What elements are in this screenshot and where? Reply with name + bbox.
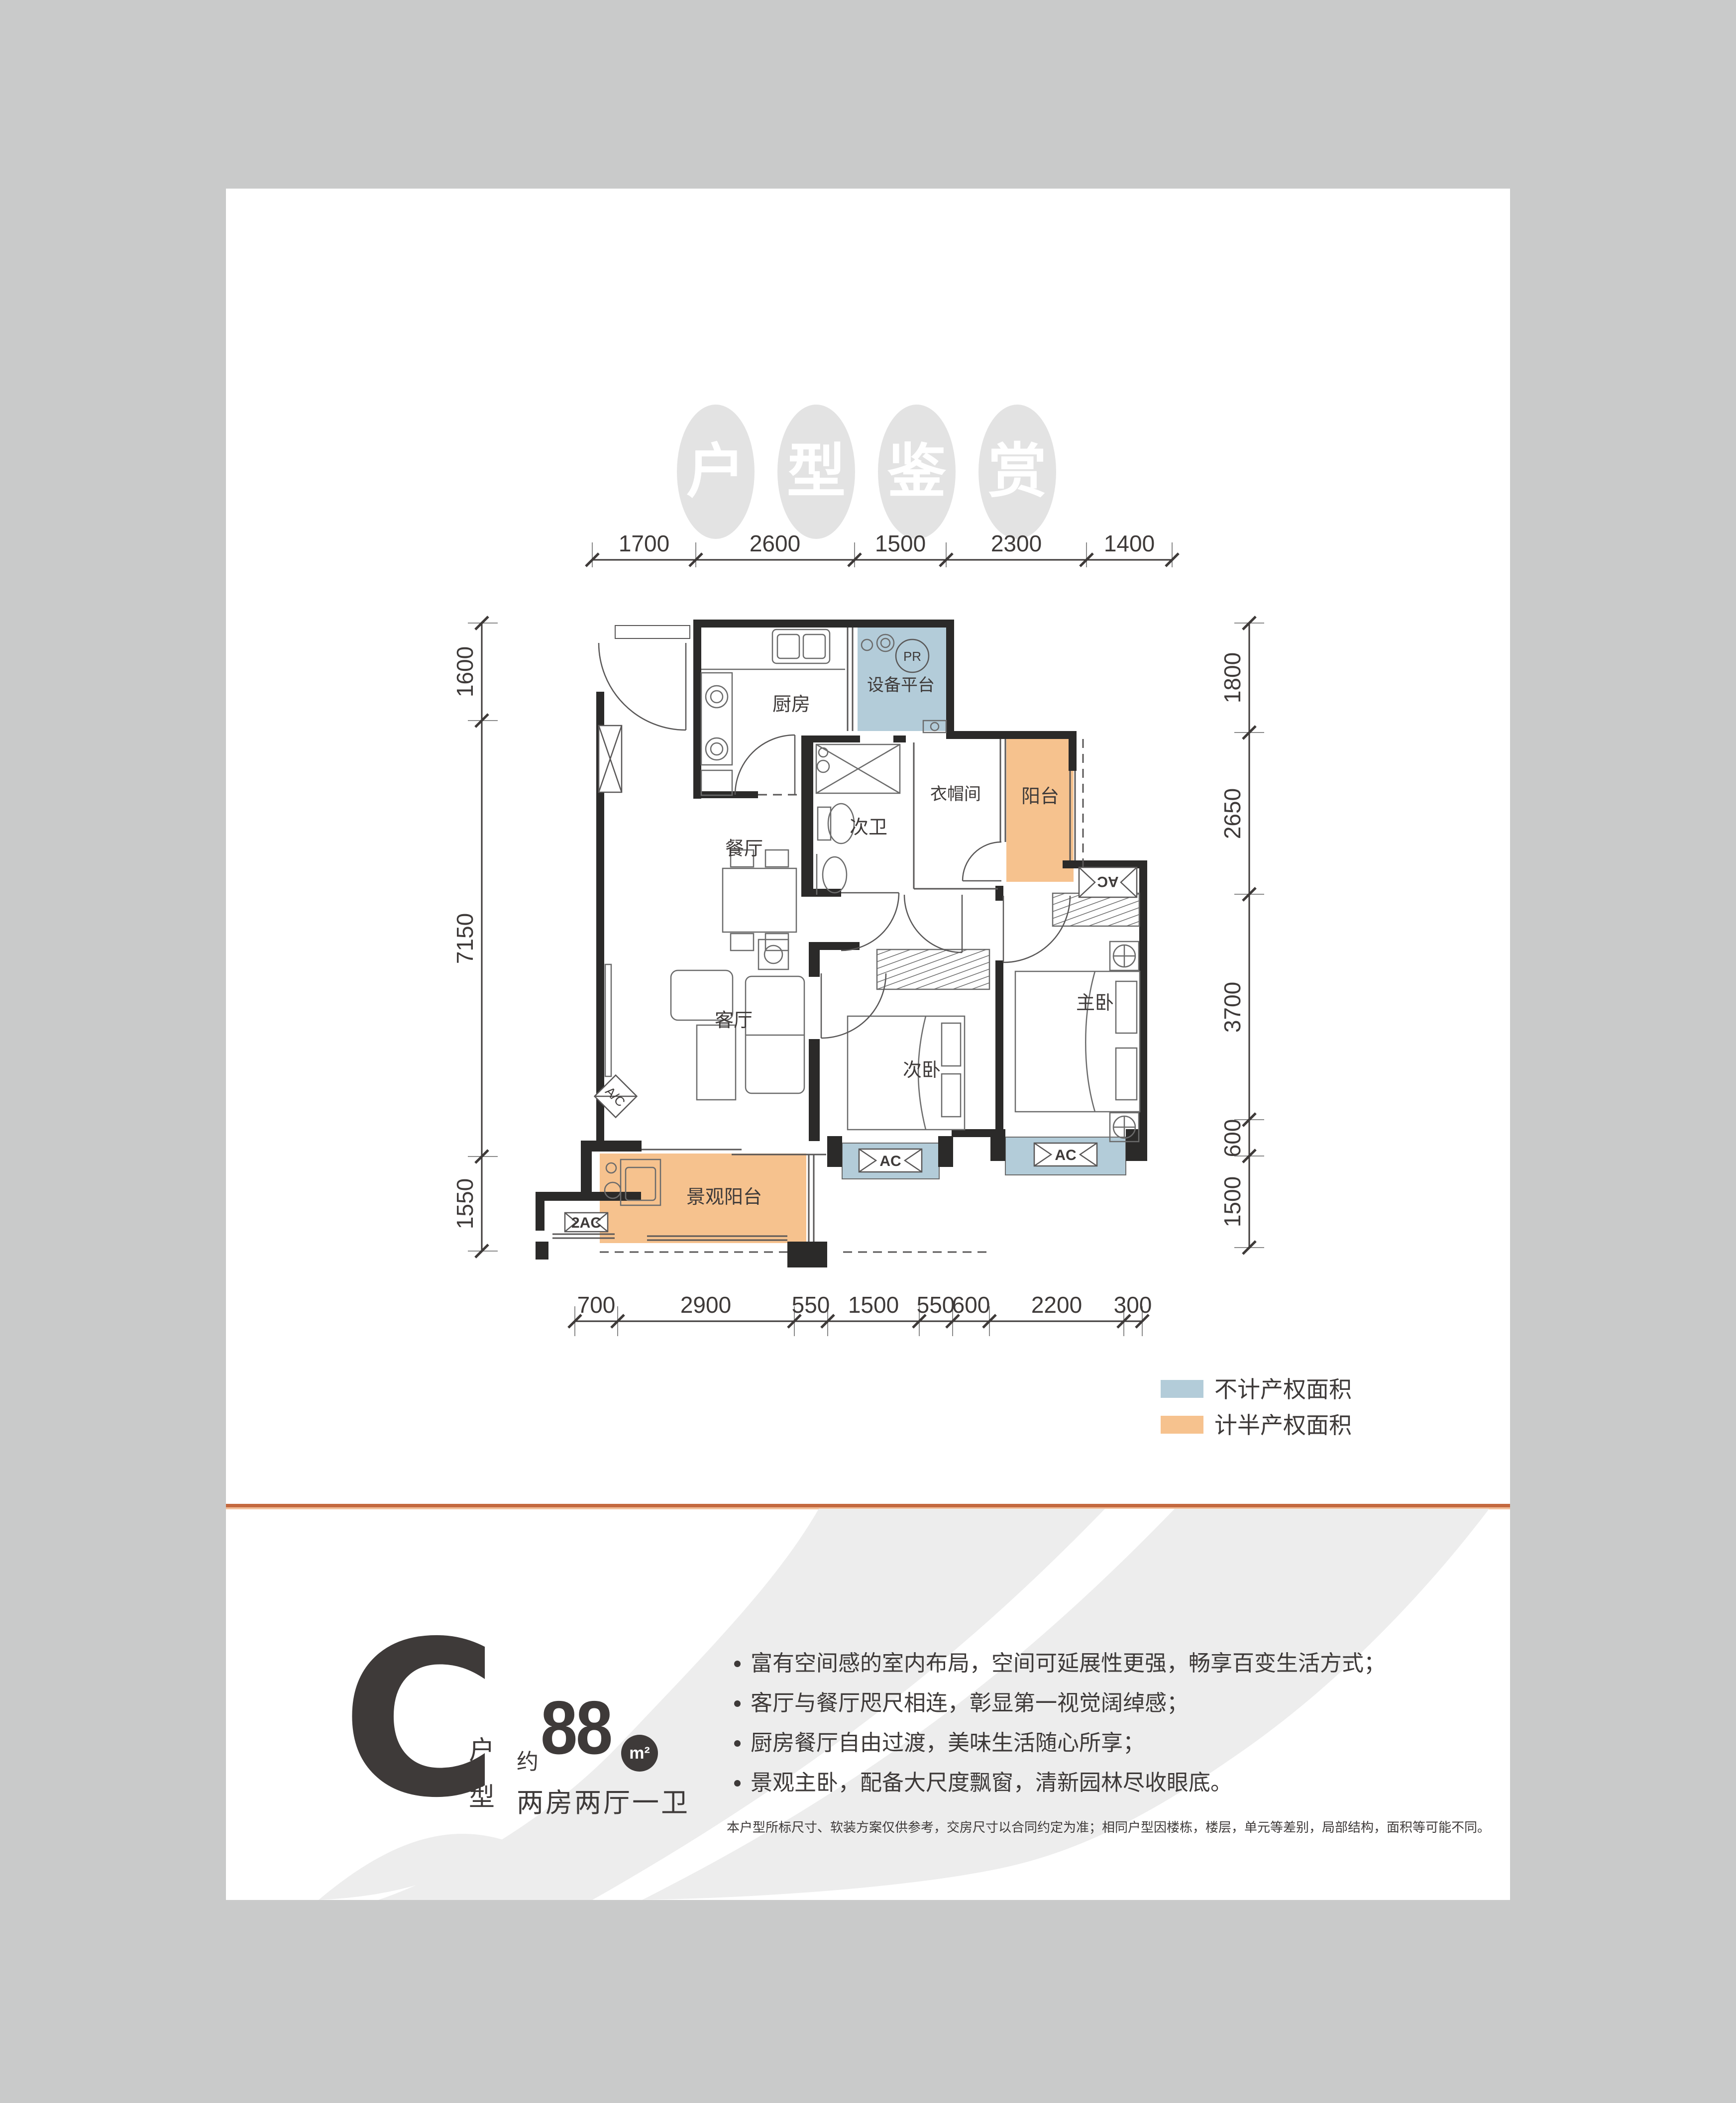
- selling-point: 富有空间感的室内布局，空间可延展性更强，畅享百变生活方式；: [751, 1652, 1447, 1675]
- ac-label-bed2: AC: [879, 1153, 901, 1169]
- area-unit-badge: m²: [621, 1735, 658, 1772]
- room-label-kitchen: 厨房: [772, 694, 810, 715]
- ac-label-rotated: AC: [1097, 873, 1118, 890]
- layout-summary: 两房两厅一卫: [517, 1781, 690, 1820]
- side-table: [759, 940, 788, 969]
- dim-top-0: 1700: [619, 530, 669, 556]
- room-label-master: 主卧: [1076, 993, 1114, 1014]
- bed2-wardrobe: [877, 949, 989, 989]
- ac2-label: 2AC: [571, 1215, 601, 1231]
- dim-bottom-2: 550: [792, 1292, 830, 1318]
- balcony-area: [1006, 739, 1074, 882]
- dim-bottom-5: 600: [952, 1292, 990, 1318]
- dim-left-0: 1600: [452, 646, 478, 697]
- legend-label-no-property: 不计产权面积: [1214, 1377, 1352, 1401]
- selling-point: 厨房餐厅自由过渡，美味生活随心所享；: [751, 1732, 1447, 1755]
- tv-cabinet: [605, 964, 611, 1076]
- dim-right-0: 1800: [1219, 652, 1245, 703]
- legend-swatch-no-property: [1161, 1380, 1203, 1398]
- room-label-balcony: 阳台: [1021, 786, 1059, 807]
- divider-line: [226, 1504, 1510, 1507]
- floorplan-poster: { "title": { "chars": ["户", "型", "鉴", "赏…: [0, 0, 1736, 2103]
- dim-top-2: 1500: [875, 530, 926, 556]
- title-char: 户: [686, 442, 745, 501]
- room-label-dining: 餐厅: [725, 839, 763, 859]
- dim-top-4: 1400: [1104, 530, 1155, 556]
- dim-top-3: 2300: [991, 530, 1042, 556]
- type-word-char: 型: [469, 1785, 495, 1810]
- selling-points-list: 富有空间感的室内布局，空间可延展性更强，畅享百变生活方式； 客厅与餐厅咫尺相连，…: [751, 1652, 1447, 1811]
- area-value: 88: [541, 1690, 611, 1766]
- type-word: 户 型: [469, 1738, 495, 1810]
- title-char: 型: [787, 442, 846, 501]
- approx-prefix: 约: [517, 1744, 539, 1776]
- room-label-living: 客厅: [715, 1010, 753, 1031]
- dim-bottom-7: 300: [1114, 1292, 1152, 1318]
- title-char: 鉴: [887, 442, 946, 501]
- dim-bottom-0: 700: [577, 1292, 616, 1318]
- bath-sink: [823, 857, 847, 893]
- dim-left-2: 1550: [452, 1178, 478, 1229]
- type-word-char: 户: [469, 1738, 495, 1764]
- dim-right-2: 3700: [1219, 982, 1245, 1033]
- room-label-view-balcony: 景观阳台: [686, 1187, 762, 1208]
- dining-table: [723, 868, 796, 932]
- disclaimer-text: 本户型所标尺寸、软装方案仅供参考，交房尺寸以合同约定为准；相同户型因楼栋，楼层，…: [727, 1817, 1513, 1836]
- dim-bottom-6: 2200: [1031, 1292, 1082, 1318]
- dim-right-1: 2650: [1219, 788, 1245, 839]
- selling-point: 客厅与餐厅咫尺相连，彰显第一视觉阔绰感；: [751, 1692, 1447, 1715]
- dim-right-4: 1500: [1219, 1176, 1245, 1227]
- room-label-equipment: 设备平台: [867, 676, 935, 695]
- room-label-bath2: 次卫: [850, 817, 887, 838]
- floorplan-drawing: 厨房 设备平台 衣帽间 阳台 餐厅 次卫 客厅 次卧 主卧 景观阳台 PR AC…: [438, 508, 1294, 1383]
- coffee-table: [697, 1025, 736, 1100]
- dim-bottom-1: 2900: [680, 1292, 731, 1318]
- pr-label: PR: [903, 649, 921, 664]
- legend-swatch-half-property: [1161, 1416, 1203, 1434]
- dim-left-1: 7150: [452, 913, 478, 964]
- room-label-cloakroom: 衣帽间: [930, 785, 981, 804]
- dim-bottom-4: 550: [917, 1292, 955, 1318]
- room-label-bed2: 次卧: [903, 1060, 941, 1081]
- ac-label-master: AC: [1055, 1147, 1076, 1163]
- legend-label-half-property: 计半产权面积: [1214, 1413, 1352, 1437]
- duct-shaft: [599, 726, 622, 792]
- title-char: 赏: [988, 442, 1047, 501]
- dim-top-1: 2600: [750, 530, 800, 556]
- selling-point: 景观主卧，配备大尺度飘窗，清新园林尽收眼底。: [751, 1772, 1447, 1794]
- dim-right-3: 600: [1219, 1119, 1245, 1157]
- dim-bottom-3: 1500: [848, 1292, 899, 1318]
